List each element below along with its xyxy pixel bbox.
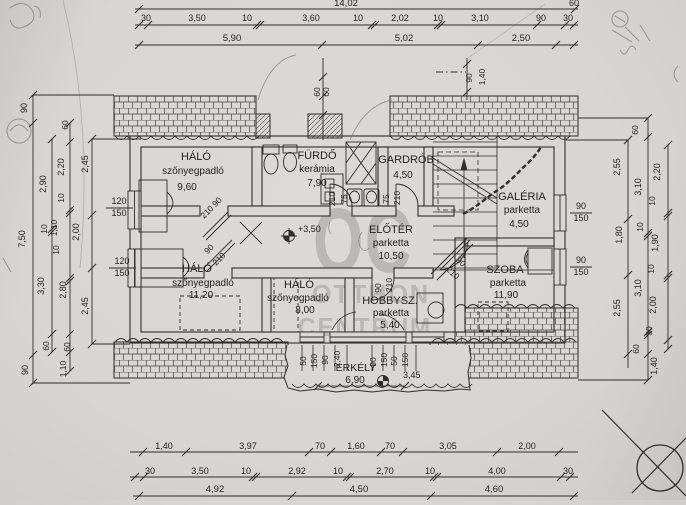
label-dims-right-10: 2,55: [612, 299, 622, 317]
scribble-top-left: [10, 3, 40, 28]
label-dims-left-5: 3,30: [36, 277, 46, 295]
label-dims-erkely-7: 150: [400, 353, 410, 367]
label-dims-left-12: 10: [51, 245, 61, 255]
label-dims-left-9: 10: [56, 193, 66, 203]
label-openings-window_left-1: 150: [114, 268, 129, 278]
label-dims-right-1: 2,55: [612, 158, 622, 176]
label-rooms-8-area: 11,90: [494, 290, 519, 301]
label-dims-bottom-row1-3: 1,60: [347, 441, 365, 451]
label-dims-right-9: 3,10: [633, 279, 643, 297]
roof-band-bottom-left: [114, 342, 288, 378]
label-dims-bottom-row2-3: 2,92: [288, 466, 306, 476]
label-dims-bottom-row2-1: 3,50: [191, 466, 209, 476]
label-dims-erkely-0: 50: [298, 356, 308, 366]
label-dims-left-3: 2,90: [38, 175, 48, 193]
scribble-left-inner: [3, 125, 28, 272]
label-dims-bottom-row1-2: 70: [315, 441, 325, 451]
label-dims-top-row2-1: 5,02: [395, 33, 414, 44]
scribble-top-right: [612, 16, 678, 82]
label-dims-right-5: 1,80: [614, 226, 624, 244]
label-dims-right-0: 60: [630, 125, 640, 135]
label-openings-door_standard-0: 90: [210, 195, 224, 209]
label-rooms-5-finish: szőnyegpadló: [172, 278, 234, 289]
label-dims-ridge-1: 1,40: [477, 68, 487, 85]
label-dims-top-row1-7: 3,10: [471, 13, 489, 23]
label-rooms-4-finish: parketta: [373, 238, 410, 249]
label-openings-door_small-0: 75: [339, 194, 349, 204]
toilet-icon: [264, 154, 278, 174]
bed-halo-left-dashed: [180, 296, 240, 330]
label-dims-left-7: 60: [60, 120, 70, 130]
label-levels-balcony: 3,45: [403, 370, 421, 380]
label-dims-left-11: 2,00: [71, 223, 81, 241]
scribble-arc-b: [350, 100, 392, 140]
label-rooms-7-name: HOBBYSZ.: [362, 295, 418, 307]
label-rooms-6-name: HÁLÓ: [284, 278, 314, 291]
label-rooms-5-name: HÁLÓ: [182, 262, 212, 275]
label-openings-window_right-0: 90: [576, 201, 586, 211]
wall-eloter-bottom-b: [232, 268, 372, 278]
label-rooms-2-area: 4,50: [393, 170, 413, 181]
label-dims-right-13: 60: [631, 344, 641, 354]
label-dims-bottom-row1-0: 1,40: [155, 441, 173, 451]
label-dims-right-6: 10: [635, 222, 645, 232]
label-dims-right-2: 3,10: [633, 178, 643, 196]
label-rooms-4-name: ELŐTÉR: [369, 222, 413, 236]
label-dims-left-6: 60: [41, 341, 51, 351]
scribble-arc-a: [258, 55, 296, 100]
wall-top-rooms-a: [141, 206, 200, 216]
label-dims-left-0: 90: [19, 103, 29, 113]
galeria-opening-edge: [463, 147, 541, 214]
toilet-tank: [263, 145, 279, 154]
label-dims-left-1: 7,50: [17, 230, 27, 248]
label-rooms-4-area: 10,50: [378, 251, 403, 262]
label-openings-window_right-1: 150: [573, 267, 588, 277]
label-dims-right-3: 2,20: [652, 163, 662, 181]
wall-top-rooms-b: [228, 206, 330, 216]
label-dims-top-row1-1: 3,50: [188, 13, 206, 23]
roof-edge-scallop: [455, 305, 575, 309]
label-openings-window_right-0: 90: [576, 255, 586, 265]
label-rooms-0-finish: szőnyegpadló: [162, 166, 224, 177]
label-rooms-3-name: GALÉRIA: [498, 190, 546, 203]
label-dims-top-row1-6: 10: [433, 13, 443, 23]
label-dims-erkely-4: 90: [368, 357, 378, 367]
label-dims-bottom-row2-7: 4,00: [488, 466, 506, 476]
label-dims-top_center-1: 60: [321, 87, 331, 97]
label-dims-top-row1-2: 10: [242, 13, 252, 23]
label-dims-bottom-row1-1: 3,97: [239, 441, 257, 451]
chimney-block: [308, 114, 342, 138]
floorplan-drawing: OC OTTHON CENTRUM: [0, 0, 686, 500]
label-dims-right-11: 2,00: [648, 296, 658, 314]
wall-halo-furdo: [252, 147, 262, 206]
label-dims-erkely-2: 90: [320, 355, 330, 365]
wall-halo-halo: [262, 278, 271, 332]
label-dims-bottom-row2-5: 2,70: [376, 466, 394, 476]
label-dims-erkely-3: 2,40: [332, 350, 342, 367]
label-dims-top-corner: 60: [569, 0, 579, 8]
label-dims-left-17: 2,45: [80, 297, 90, 315]
label-dims-ridge-0: 90: [464, 73, 474, 83]
label-dims-erkely-5: 150: [379, 353, 389, 367]
label-dims-left-2: 90: [20, 365, 30, 375]
staircase: [433, 136, 553, 270]
wardrobe-szoba-arcs: [525, 250, 529, 268]
label-rooms-1-finish: kerámia: [299, 164, 335, 175]
label-rooms-7-finish: parketta: [373, 308, 410, 319]
label-dims-left-8: 2,20: [56, 158, 66, 176]
roof-edge-scallop: [115, 339, 283, 343]
label-rooms-6-finish: szőnyegpadló: [267, 293, 329, 304]
label-openings-window_right-1: 150: [573, 213, 588, 223]
label-rooms-3-finish: parketta: [504, 205, 541, 216]
roof-band-top-right: [390, 96, 578, 136]
label-rooms-6-area: 8,00: [295, 305, 315, 316]
label-levels-upper: +3,50: [298, 224, 321, 234]
label-dims-bottom-row1-5: 3,05: [439, 441, 457, 451]
stair-headroom-dashed: [438, 152, 478, 210]
label-dims-top-total: 14,02: [334, 0, 358, 9]
wall-halo-hobbysz: [345, 278, 354, 332]
label-dims-bottom-row1-6: 2,00: [518, 441, 536, 451]
label-dims-right-8: 10: [646, 264, 656, 274]
north-compass-lines: [602, 410, 686, 496]
wall-top-rooms-c: [352, 206, 396, 216]
label-dims-bottom-row2-8: 30: [563, 466, 573, 476]
label-dims-erkely-6: 50: [389, 356, 399, 366]
label-rooms-2-name: GARDRÓB: [378, 153, 434, 166]
label-openings-window_left-0: 120: [111, 196, 126, 206]
wall-galeria-szoba: [465, 238, 554, 246]
label-dims-left-4: 10: [39, 224, 49, 234]
level-marker-upper-cross: [281, 228, 297, 244]
label-dims-left-10: 1,10: [49, 219, 59, 236]
label-dims-right-12: 30: [644, 326, 654, 336]
label-dims-left-13: 2,80: [58, 281, 68, 299]
label-rooms-8-name: SZOBA: [486, 264, 524, 276]
label-rooms-8-finish: parketta: [490, 278, 527, 289]
wall-hobbysz-szoba: [455, 238, 465, 332]
roof-band-top-left: [114, 96, 256, 136]
label-dims-left-16: 2,45: [80, 155, 90, 173]
label-openings-door_standard-0: 90: [202, 242, 216, 256]
label-dims-left-15: 1,10: [58, 360, 68, 377]
label-openings-door_standard-0: 90: [373, 283, 383, 293]
label-rooms-3-area: 4,50: [509, 219, 529, 230]
label-rooms-9-area: 6,90: [345, 375, 365, 386]
scanned-floorplan-page: OC OTTHON CENTRUM: [0, 0, 686, 500]
wall-eloter-bottom-c: [394, 268, 433, 278]
wall-top-rooms-d: [418, 206, 454, 216]
label-rooms-1-name: FÜRDŐ: [297, 148, 337, 162]
hobby-chair: [428, 302, 444, 318]
label-dims-top-row1-0: 30: [141, 13, 151, 23]
label-openings-window_left-1: 150: [111, 208, 126, 218]
label-dims-right-7: 1,90: [650, 234, 660, 252]
label-dims-left-14: 60: [62, 342, 72, 352]
label-rooms-1-area: 7,90: [307, 178, 327, 189]
label-dims-top-row2-0: 5,90: [223, 33, 242, 44]
label-dims-right-14: 1,40: [649, 357, 659, 375]
label-openings-door_small-1: 210: [392, 191, 402, 205]
label-dims-erkely-1: 150: [309, 354, 319, 368]
label-dims-top-row1-4: 10: [353, 13, 363, 23]
label-dims-top-row2-2: 2,50: [512, 33, 531, 44]
label-rooms-5-area: 11,20: [189, 290, 214, 301]
label-dims-bottom-row3-2: 4,60: [485, 484, 504, 495]
label-openings-door_small-1: 210: [327, 192, 337, 206]
label-dims-bottom-row3-1: 4,50: [350, 484, 369, 495]
door-halo-top-leaf: [203, 212, 262, 244]
label-dims-top-row1-3: 3,60: [302, 13, 320, 23]
label-dims-top-row1-9: 30: [563, 13, 573, 23]
label-dims-bottom-row2-2: 10: [241, 466, 251, 476]
stair-arrow-head: [461, 159, 467, 170]
label-dims-bottom-row2-0: 30: [145, 466, 155, 476]
label-dims-bottom-row2-4: 10: [333, 466, 343, 476]
north-compass-icon: [637, 445, 683, 491]
label-openings-window_left-0: 120: [114, 256, 129, 266]
shower-hatch: [346, 142, 376, 184]
bidet-icon: [284, 153, 297, 172]
label-dims-right-4: 10: [647, 196, 657, 206]
label-rooms-0-name: HÁLÓ: [181, 150, 211, 163]
label-openings-door_standard-1: 210: [384, 278, 394, 292]
label-rooms-0-area: 9,60: [177, 182, 197, 193]
label-openings-door_small-0: 75: [381, 194, 391, 204]
bidet-tank: [283, 145, 297, 153]
label-dims-bottom-row3-0: 4,92: [206, 484, 225, 495]
label-dims-bottom-row2-6: 10: [425, 466, 435, 476]
label-rooms-7-area: 5,40: [380, 320, 400, 331]
vent-block: [256, 114, 270, 138]
label-dims-bottom-row1-4: 70: [385, 441, 395, 451]
label-dims-top-row1-5: 2,02: [391, 13, 409, 23]
label-dims-top-row1-8: 90: [536, 13, 546, 23]
